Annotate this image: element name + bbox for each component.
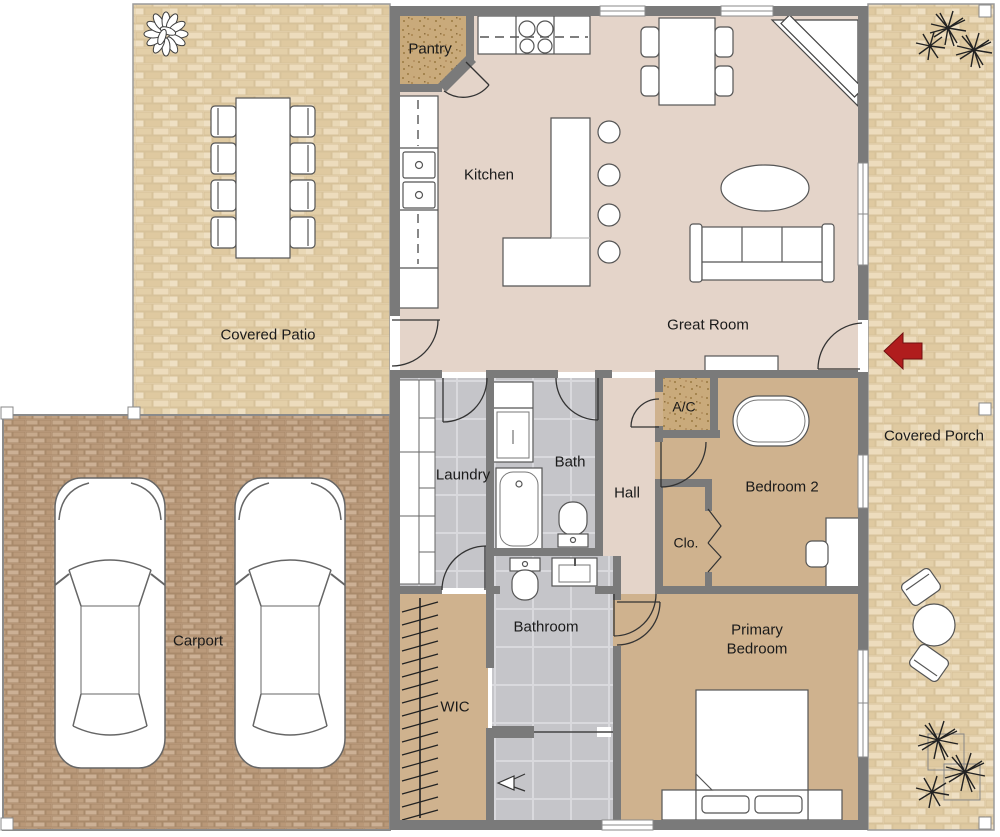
floor-plan: Pantry Kitchen Great Room Covered Patio … bbox=[0, 0, 1000, 837]
desk-chair bbox=[806, 541, 828, 567]
bathtub-icon bbox=[496, 468, 542, 550]
room-label-covered-patio: Covered Patio bbox=[220, 327, 315, 346]
room-label-bathroom: Bathroom bbox=[513, 619, 578, 638]
room-label-bedroom-2: Bedroom 2 bbox=[745, 479, 818, 498]
bath-toilet-icon bbox=[558, 502, 588, 547]
window bbox=[858, 163, 868, 265]
room-label-laundry: Laundry bbox=[436, 467, 490, 486]
entry-door-gap bbox=[858, 320, 868, 372]
room-label-hall: Hall bbox=[614, 485, 640, 504]
window bbox=[721, 6, 773, 16]
window bbox=[602, 820, 653, 830]
oval-rug bbox=[733, 396, 809, 446]
nightstand-left bbox=[662, 790, 696, 820]
room-label-closet: Clo. bbox=[674, 534, 699, 552]
window bbox=[858, 455, 868, 508]
vanity-sink-icon bbox=[552, 558, 597, 586]
room-label-ac: A/C bbox=[672, 398, 695, 416]
floor-plan-graphics bbox=[0, 0, 1000, 837]
nightstand-right bbox=[808, 790, 842, 820]
car-2 bbox=[235, 478, 345, 768]
bathroom-toilet-icon bbox=[510, 558, 540, 600]
sofa bbox=[690, 224, 834, 282]
room-label-covered-porch: Covered Porch bbox=[884, 428, 984, 447]
room-label-great-room: Great Room bbox=[667, 317, 749, 336]
room-label-bath: Bath bbox=[555, 454, 586, 473]
room-label-wic: WIC bbox=[440, 699, 469, 718]
window bbox=[858, 650, 868, 757]
covered-porch-area bbox=[868, 4, 994, 830]
pillow-right bbox=[755, 796, 802, 813]
room-label-primary-bedroom: Primary Bedroom bbox=[710, 621, 805, 659]
coffee-table bbox=[721, 165, 809, 211]
car-1 bbox=[55, 478, 165, 768]
laundry-cabinets bbox=[399, 380, 435, 584]
shower-stall-icon bbox=[493, 382, 533, 462]
room-label-kitchen: Kitchen bbox=[464, 167, 514, 186]
pillow-left bbox=[702, 796, 749, 813]
room-label-pantry: Pantry bbox=[408, 41, 451, 60]
patio-door-gap bbox=[390, 316, 400, 370]
window bbox=[600, 6, 645, 16]
room-label-carport: Carport bbox=[173, 633, 223, 652]
